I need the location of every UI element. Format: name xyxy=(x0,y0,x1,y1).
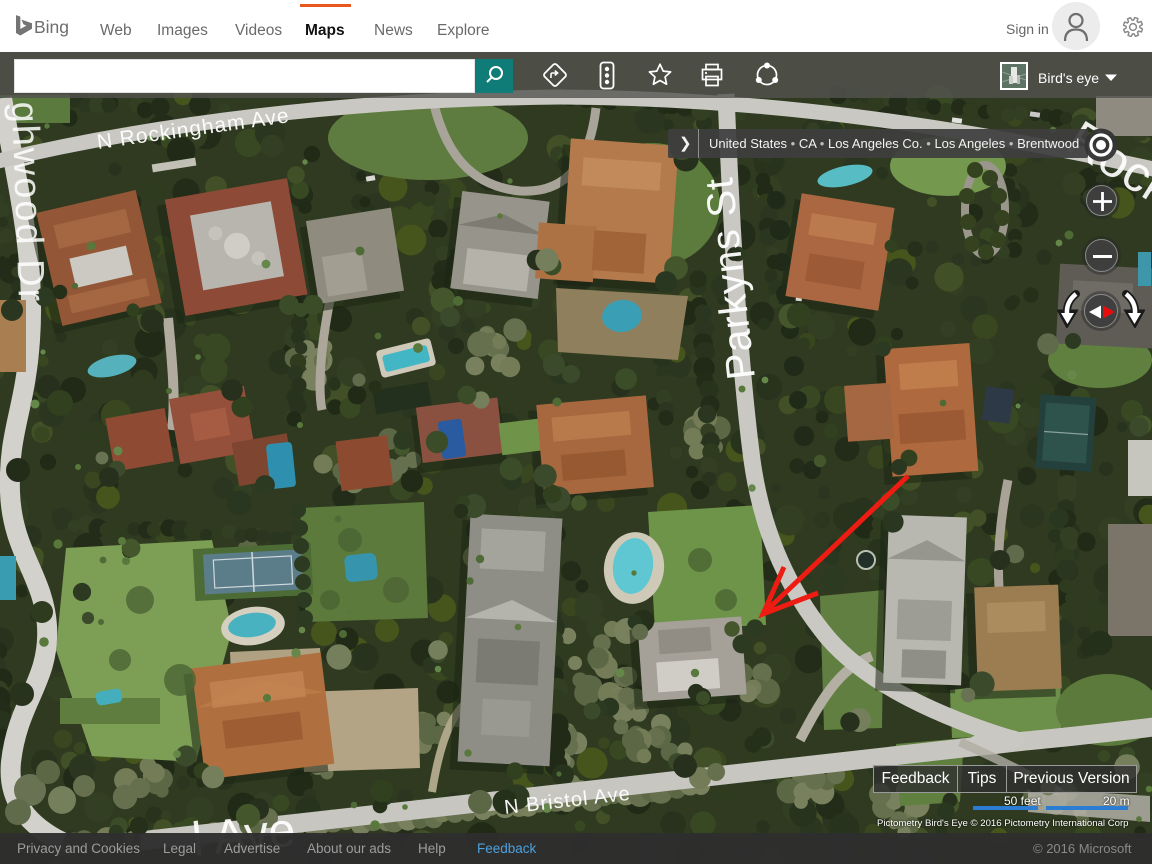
svg-text:ghwood Dr: ghwood Dr xyxy=(3,101,52,304)
